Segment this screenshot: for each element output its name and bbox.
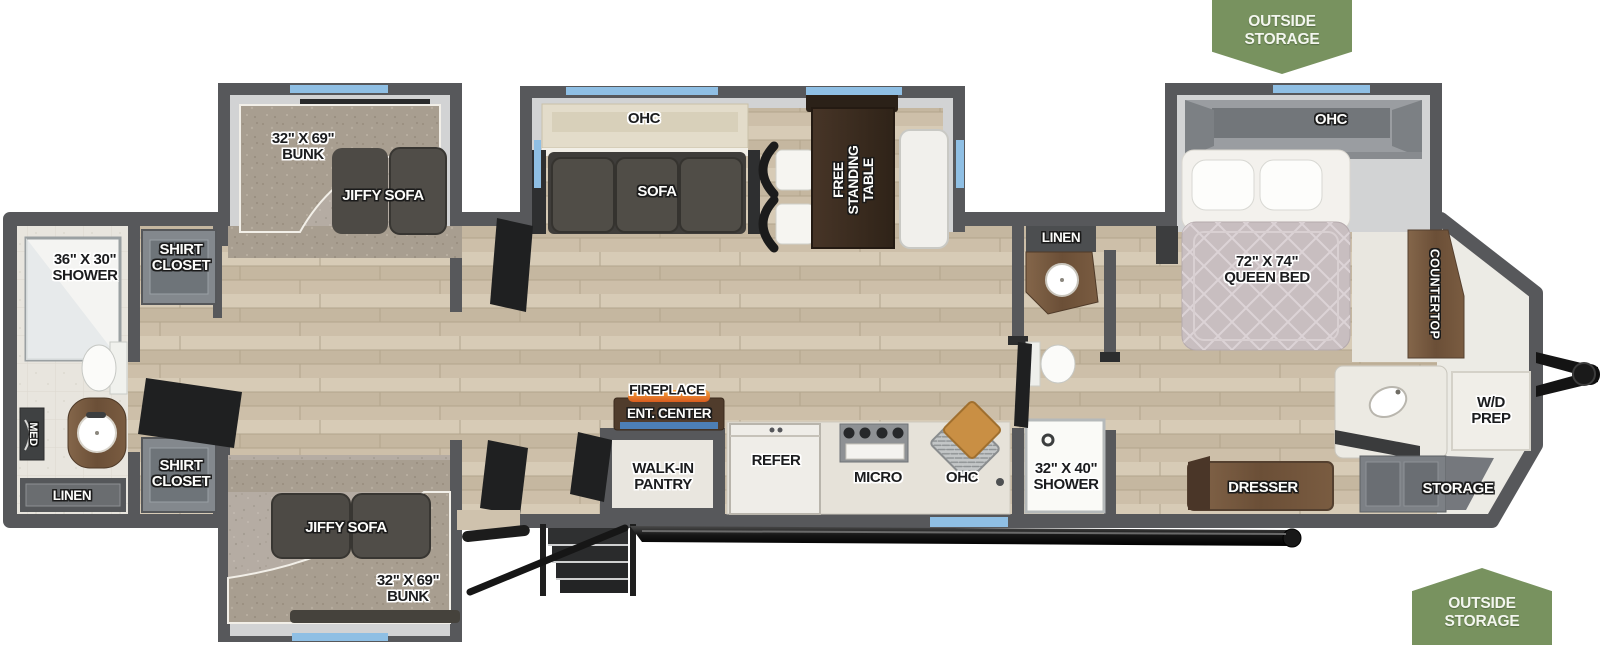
fireplace-flame [628,390,710,402]
rv-floorplan-page: 32" X 69" BUNK JIFFY SOFA 36" X 30" SHOW… [0,0,1600,648]
bench-seat [900,130,948,248]
refrigerator-shape [730,424,820,514]
window [1273,85,1370,93]
open-door [490,218,533,312]
floorplan-drawing [0,0,1600,648]
bunk-slide-top [218,83,462,258]
sofa-shape [548,152,746,234]
window [566,87,718,95]
window [534,140,541,188]
window [806,87,902,95]
living-slide [520,86,965,248]
window [956,140,964,188]
toilet-icon [1041,345,1075,383]
pillow [1192,160,1254,210]
toilet-icon [82,345,116,391]
hitch-icon [1536,352,1600,397]
medicine-cabinet [20,408,44,460]
window [290,85,388,93]
window [292,633,388,641]
open-door [480,440,528,515]
awning-roller [630,526,1301,547]
wd-prep-shape [1452,372,1530,450]
mid-shower [1026,420,1104,512]
jiffy-sofa-top-shape [332,148,446,234]
mid-linen-cabinet [1026,226,1096,252]
window [930,517,1008,527]
bunk-slide-bottom [218,455,462,642]
free-standing-table-shape [812,108,894,248]
pillow [1260,160,1322,210]
